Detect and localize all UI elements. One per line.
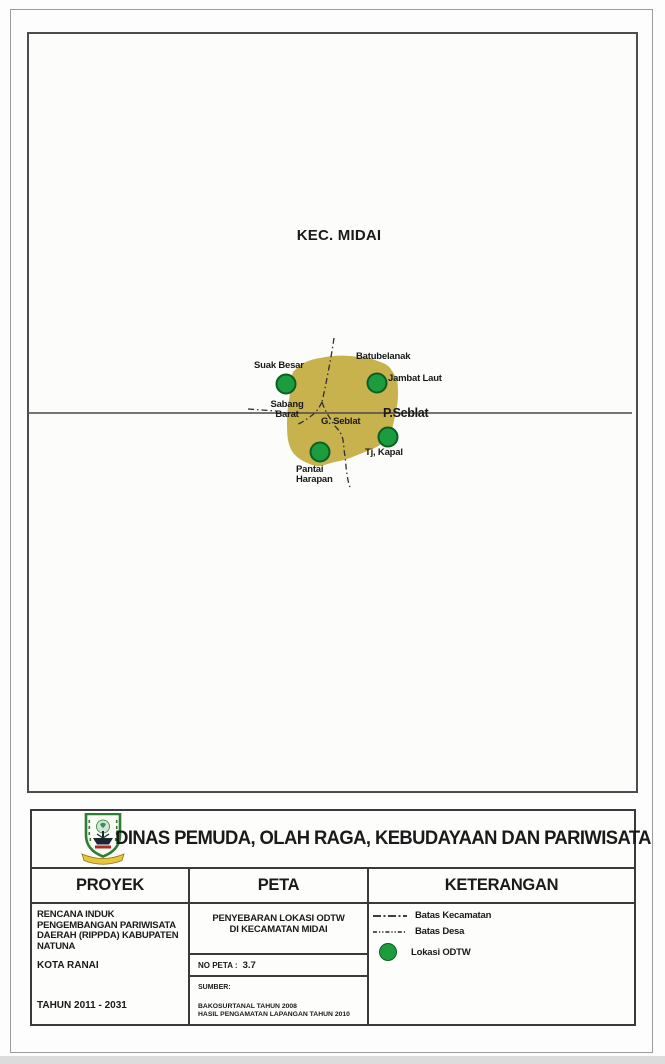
source-row: SUMBER: BAKOSURTANAL TAHUN 2008 HASIL PE… <box>190 977 367 1024</box>
legend-item-batas-desa: Batas Desa <box>373 926 464 937</box>
project-name: RENCANA INDUK PENGEMBANGAN PARIWISATA DA… <box>37 910 185 952</box>
title-block-header-row: DINAS PEMUDA, OLAH RAGA, KEBUDAYAAN DAN … <box>32 811 634 867</box>
map-title: PENYEBARAN LOKASI ODTW DI KECAMATAN MIDA… <box>190 904 367 953</box>
map-area: KEC. MIDAI Suak Besar Batubelanak Jambat… <box>27 32 638 793</box>
source-label: SUMBER: <box>198 984 231 991</box>
map-title-line2: DI KECAMATAN MIDAI <box>230 924 328 935</box>
legend-item-batas-kecamatan: Batas Kecamatan <box>373 910 491 921</box>
source-line1: BAKOSURTANAL TAHUN 2008 <box>198 1003 297 1010</box>
batas-desa-line-icon <box>373 929 407 935</box>
map-label-sabang-barat: Sabang Barat <box>266 400 308 420</box>
marker-pantai-harapan <box>311 443 330 462</box>
scan-edge-artifact <box>0 1056 665 1064</box>
project-city: KOTA RANAI <box>37 960 99 971</box>
column-header-proyek: PROYEK <box>32 869 190 902</box>
map-title-line1: PENYEBARAN LOKASI ODTW <box>212 913 344 924</box>
column-header-keterangan: KETERANGAN <box>369 869 634 902</box>
title-block: DINAS PEMUDA, OLAH RAGA, KEBUDAYAAN DAN … <box>30 809 636 1026</box>
project-period: TAHUN 2011 - 2031 <box>37 1000 127 1011</box>
lokasi-odtw-circle-icon <box>379 943 397 961</box>
marker-tj-kapal <box>379 428 398 447</box>
map-label-pantai-harapan: Pantai Harapan <box>296 465 342 485</box>
map-number-row: NO PETA : 3.7 <box>190 953 367 977</box>
content-row: RENCANA INDUK PENGEMBANGAN PARIWISATA DA… <box>32 902 634 1024</box>
marker-jambat-laut <box>368 374 387 393</box>
map-sheet-page: KEC. MIDAI Suak Besar Batubelanak Jambat… <box>0 0 665 1064</box>
peta-cell: PENYEBARAN LOKASI ODTW DI KECAMATAN MIDA… <box>190 904 369 1024</box>
keterangan-cell: Batas Kecamatan Batas Desa Lokasi ODTW <box>369 904 634 1024</box>
source-line2: HASIL PENGAMATAN LAPANGAN TAHUN 2010 <box>198 1011 350 1018</box>
batas-kecamatan-line-icon <box>373 913 407 919</box>
page-border: KEC. MIDAI Suak Besar Batubelanak Jambat… <box>10 9 653 1053</box>
map-label-suak-besar: Suak Besar <box>254 361 304 371</box>
map-label-tj-kapal: Tj, Kapal <box>365 448 403 458</box>
agency-title: DINAS PEMUDA, OLAH RAGA, KEBUDAYAAN DAN … <box>143 811 622 867</box>
map-number-label: NO PETA : <box>198 961 238 970</box>
map-label-p-seblat: P.Seblat <box>383 408 428 418</box>
legend-item-lokasi-odtw: Lokasi ODTW <box>379 943 471 961</box>
map-canvas <box>29 34 632 787</box>
column-header-peta: PETA <box>190 869 369 902</box>
map-label-jambat-laut: Jambat Laut <box>388 374 442 384</box>
marker-suak-besar <box>277 375 296 394</box>
region-title: KEC. MIDAI <box>259 227 419 244</box>
map-number-value: 3.7 <box>243 960 256 971</box>
map-label-batubelanak: Batubelanak <box>356 352 410 362</box>
proyek-cell: RENCANA INDUK PENGEMBANGAN PARIWISATA DA… <box>32 904 190 1024</box>
column-header-row: PROYEK PETA KETERANGAN <box>32 867 634 902</box>
map-label-g-seblat: G. Seblat <box>321 417 360 427</box>
